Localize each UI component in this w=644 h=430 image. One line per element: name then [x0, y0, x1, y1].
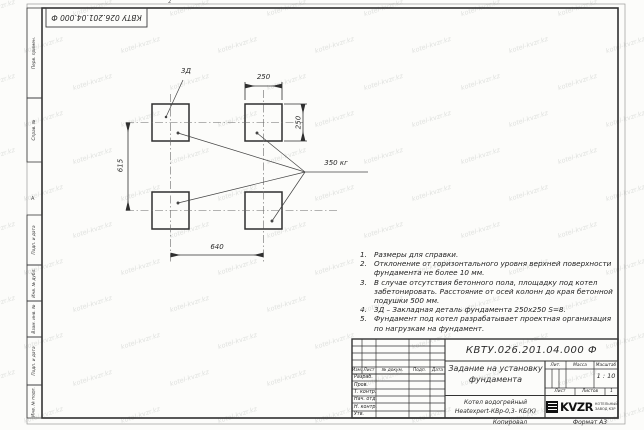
footer-format: Формат А3 [556, 419, 624, 426]
filing-designation: КВТУ 026.201.04.000 Ф [46, 9, 147, 26]
dim-250-right: 250 [295, 111, 304, 135]
document-title: Задание на установку фундамента [446, 364, 545, 386]
dim-250-top: 250 [245, 73, 282, 81]
note-item: 4.3Д – Закладная деталь фундамента 250х2… [355, 305, 621, 314]
margin-label-podp-data-2: Подп. и дата [30, 337, 40, 385]
sign-row-nkontr: Н. контр. [354, 405, 377, 410]
product-name: Котел водогрейный Heatexpert-КВр-0,3- КБ… [446, 398, 545, 417]
scale-label: Масштаб [594, 363, 618, 368]
note-number: 5. [355, 314, 374, 332]
note-text: 3Д – Закладная деталь фундамента 250х250… [374, 305, 566, 314]
document-title-line1: Задание на установку [446, 364, 545, 375]
product-name-line2: Heatexpert-КВр-0,3- КБ(К) [446, 407, 545, 416]
product-name-line1: Котел водогрейный [446, 398, 545, 407]
leader-lines [165, 80, 368, 222]
col-header-docnum: № докум. [376, 368, 409, 373]
dim-615-left: 615 [117, 154, 126, 178]
note-number: 2. [355, 259, 374, 277]
note-text: Отклонение от горизонтального уровня вер… [374, 259, 621, 277]
sign-row-razrab: Разраб. [354, 375, 373, 380]
sign-row-tkontr: Т. контр. [354, 390, 376, 395]
col-header-data: Дата [430, 368, 445, 373]
margin-label-inv-dubl: Инв. № дубл. [30, 265, 40, 301]
kvzr-logo-icon [546, 401, 558, 413]
note-number: 4. [355, 305, 374, 314]
margin-label-sprav-no: Справ. № [30, 98, 40, 162]
detail-callout-3d: 3Д [176, 67, 196, 75]
scale-value: 1 : 10 [594, 372, 618, 380]
lit-label: Лит. [545, 363, 566, 368]
note-item: 3.В случае отсутствия бетонного пола, пл… [355, 278, 621, 306]
note-number: 3. [355, 278, 374, 306]
kvzr-logo-subtext-line1: КОТЕЛЬНЫЙ [595, 402, 618, 406]
note-item: 1.Размеры для справки. [355, 250, 621, 259]
kvzr-logo-subtext-line2: ЗАВОД КЗР [595, 407, 618, 411]
note-text: В случае отсутствия бетонного пола, площ… [374, 278, 621, 306]
col-header-izm: Изм. [352, 368, 362, 373]
margin-label-perv-primen: Перв. примен. [30, 8, 40, 98]
sheets-value: 1 [605, 389, 618, 394]
col-header-list: Лист [362, 368, 376, 373]
col-header-podp: Подп. [409, 368, 430, 373]
load-callout-350kg: 350 кг [306, 159, 366, 167]
zone-mark-top: 2 [168, 0, 171, 5]
title-block-designation: КВТУ.026.201.04.000 Ф [446, 342, 617, 360]
kvzr-logo-text: KVZR [560, 400, 593, 414]
kvzr-logo-subtext: КОТЕЛЬНЫЙ ЗАВОД КЗР [595, 402, 618, 410]
note-text: Размеры для справки. [374, 250, 458, 259]
margin-label-vzam-inv: Взам. инв. № [30, 301, 40, 337]
centerlines [126, 90, 338, 263]
sign-row-nachotd: Нач. отд. [354, 397, 377, 402]
sheet-label: Лист [545, 389, 575, 394]
drawing-sheet: kotel-kvzr.kzkotel-kvzr.kzkotel-kvzr.kzk… [0, 0, 644, 430]
sheets-label: Листов [575, 389, 605, 394]
zone-mark-left: А [31, 196, 34, 202]
notes-block: 1.Размеры для справки. 2.Отклонение от г… [355, 250, 621, 333]
company-logo-cell: KVZR КОТЕЛЬНЫЙ ЗАВОД КЗР [546, 396, 618, 417]
sign-row-prov: Пров. [354, 383, 368, 388]
note-number: 1. [355, 250, 374, 259]
mass-label: Масса [566, 363, 594, 368]
sign-row-utv: Утв. [354, 412, 364, 417]
note-item: 5.Фундамент под котел разрабатывает прое… [355, 314, 621, 332]
note-text: Фундамент под котел разрабатывает проект… [374, 314, 621, 332]
margin-label-podp-data-1: Подп. и дата [30, 215, 40, 265]
margin-label-inv-podl: Инв. № подл. [30, 385, 40, 418]
note-item: 2.Отклонение от горизонтального уровня в… [355, 259, 621, 277]
footer-copied-by: Копировал [475, 419, 545, 426]
document-title-line2: фундамента [446, 375, 545, 386]
dim-640-bottom: 640 [199, 243, 235, 251]
